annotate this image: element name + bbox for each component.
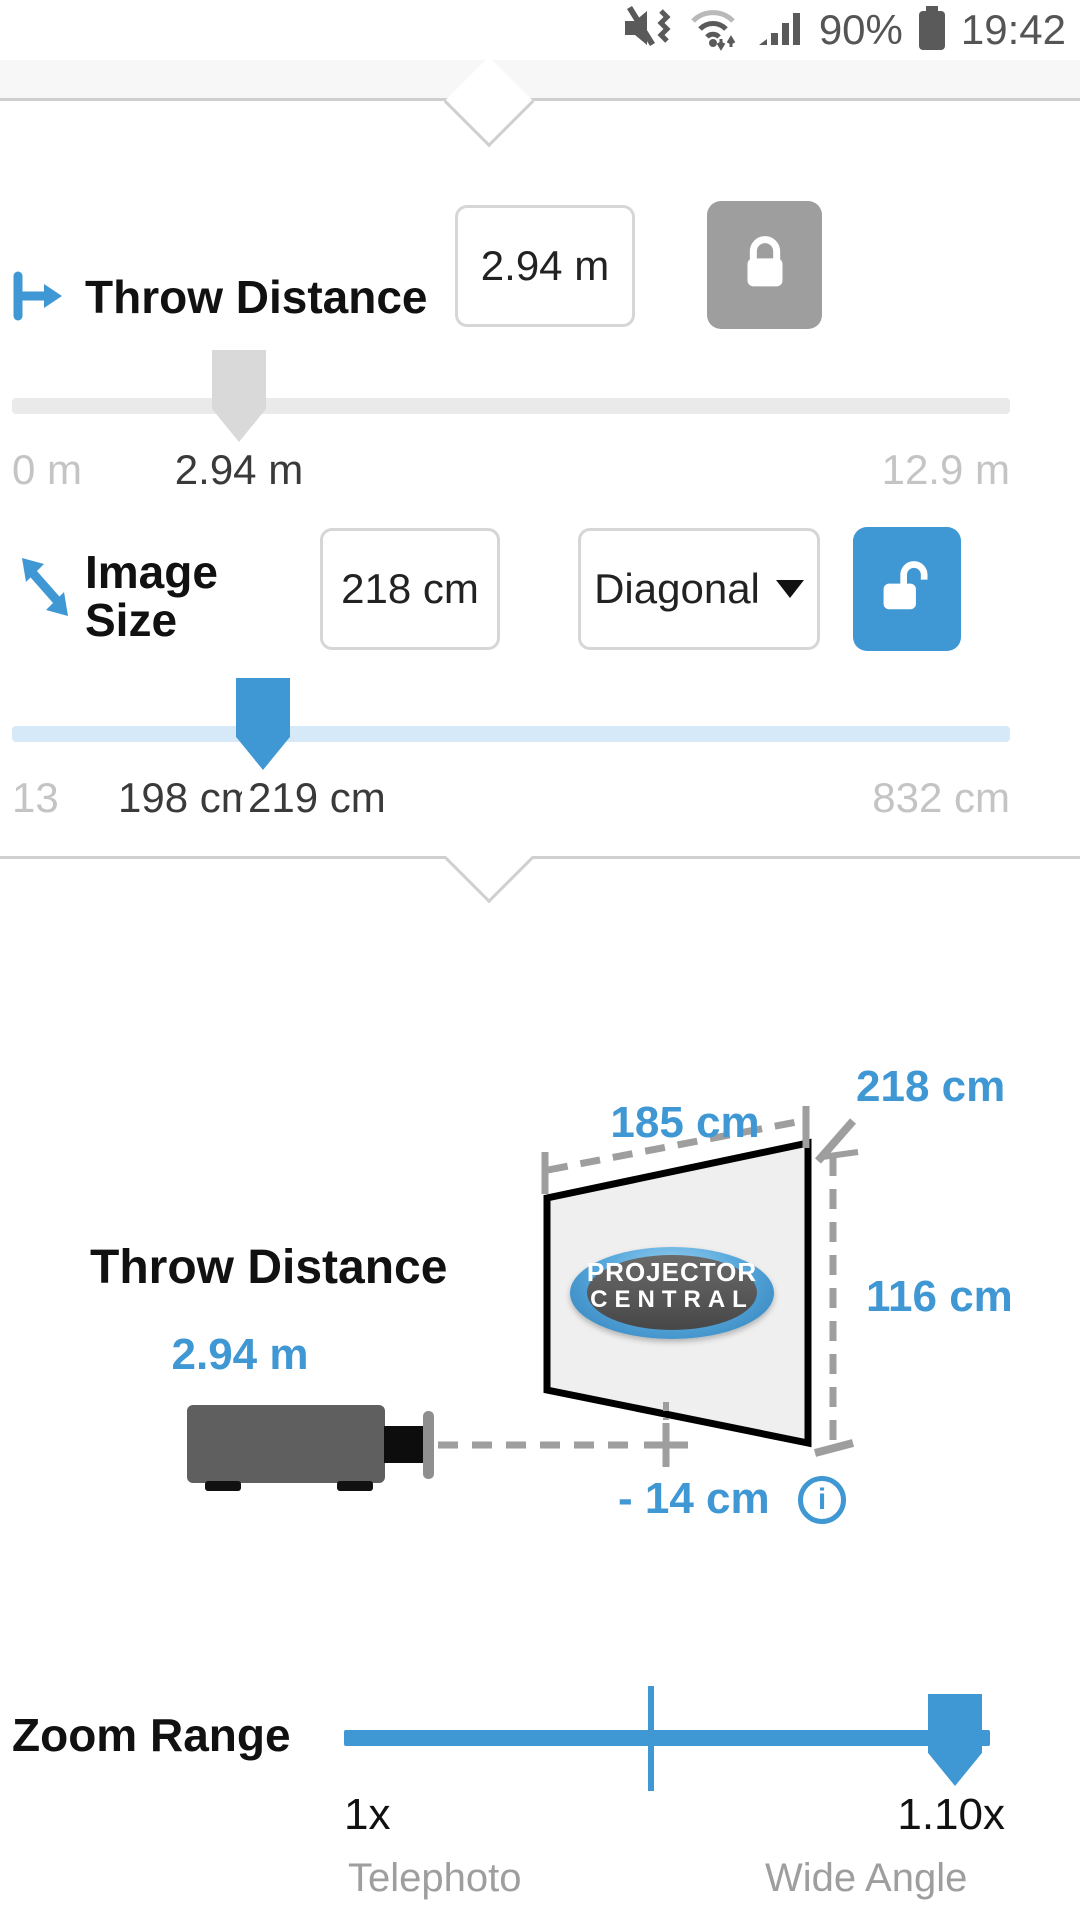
lock-open-icon (878, 556, 936, 623)
zoom-max-caption: Wide Angle (765, 1856, 967, 1901)
throw-distance-input[interactable]: 2.94 m (455, 205, 635, 327)
offset-info-icon[interactable]: i (798, 1476, 846, 1524)
size-slider-value-label: 219 cm (242, 774, 386, 822)
lens-offset-value: - 14 cm (618, 1474, 770, 1524)
clock: 19:42 (961, 6, 1066, 54)
top-panel-band (0, 60, 1080, 101)
projection-calculator-screen: 90% 19:42 Throw Distance 2.94 m 0 m 2.94… (0, 0, 1080, 1920)
throw-slider-value-label: 2.94 m (163, 446, 315, 494)
throw-distance-slider-track (12, 398, 1010, 414)
signal-strength-icon (757, 5, 805, 56)
throw-distance-slider-handle (212, 350, 266, 442)
status-bar: 90% 19:42 (0, 0, 1080, 60)
size-slider-min-label: 13 (12, 774, 59, 822)
mute-vibrate-icon (621, 5, 673, 56)
battery-percent: 90% (819, 6, 903, 54)
zoom-max-value: 1.10x (890, 1790, 1005, 1840)
size-slider-tele-label: 198 cm (118, 774, 256, 822)
battery-icon (917, 4, 947, 57)
size-slider-max-label: 832 cm (830, 774, 1010, 822)
panel-divider (0, 856, 1080, 859)
zoom-range-slider-track[interactable] (344, 1730, 990, 1746)
zoom-min-caption: Telephoto (348, 1856, 521, 1901)
diagram-throw-distance-label: Throw Distance (90, 1240, 390, 1295)
projector-illustration (187, 1405, 434, 1491)
zoom-min-value: 1x (344, 1790, 390, 1840)
image-size-label: Image Size (85, 548, 218, 645)
throw-distance-icon (12, 268, 64, 329)
throw-slider-max-label: 12.9 m (830, 446, 1010, 494)
zoom-range-slider-handle[interactable] (928, 1694, 982, 1786)
throw-distance-label: Throw Distance (85, 270, 428, 324)
image-size-lock-button[interactable] (853, 527, 961, 651)
projector-central-logo-text: PROJECTOR CENTRAL (570, 1258, 774, 1313)
image-height-value: 116 cm (866, 1272, 1013, 1322)
throw-distance-lock-button[interactable] (707, 201, 822, 329)
image-width-value: 185 cm (590, 1098, 780, 1148)
image-size-label-line1: Image (85, 548, 218, 596)
image-size-diagonal-icon (18, 556, 72, 623)
image-dimension-dropdown[interactable]: Diagonal (578, 528, 820, 650)
zoom-range-label: Zoom Range (12, 1708, 291, 1762)
lock-closed-icon (737, 231, 793, 300)
image-diagonal-value: 218 cm (856, 1062, 1005, 1112)
zoom-range-center-tick (648, 1686, 654, 1791)
image-size-label-line2: Size (85, 596, 218, 644)
throw-slider-min-label: 0 m (12, 446, 82, 494)
image-size-input[interactable]: 218 cm (320, 528, 500, 650)
image-size-slider-handle[interactable] (236, 678, 290, 770)
chevron-down-icon (776, 580, 804, 598)
image-size-slider-track[interactable] (12, 726, 1010, 742)
diagram-throw-distance-value: 2.94 m (90, 1330, 390, 1380)
wifi-icon (687, 5, 743, 56)
image-dimension-value: Diagonal (594, 565, 760, 613)
